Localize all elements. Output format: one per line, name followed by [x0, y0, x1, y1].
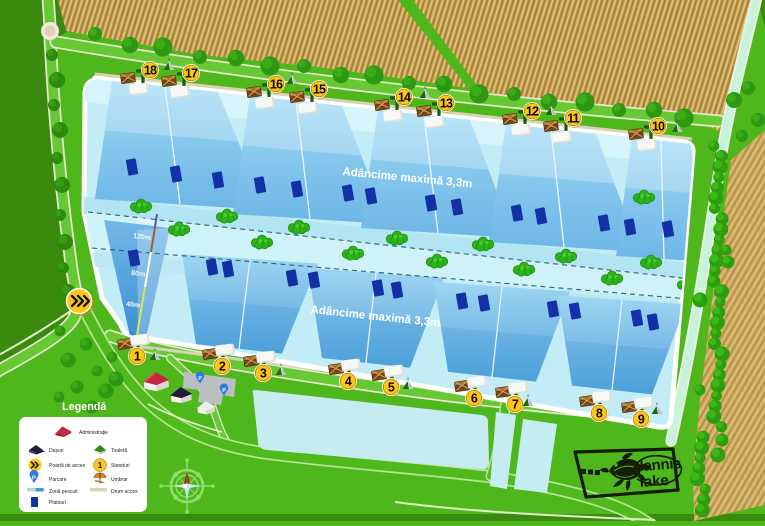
svg-text:Administrație: Administrație [79, 430, 108, 436]
svg-text:5: 5 [388, 380, 395, 394]
svg-text:1: 1 [134, 349, 141, 363]
svg-text:P: P [222, 388, 226, 394]
svg-text:16: 16 [270, 77, 283, 91]
svg-text:11: 11 [567, 111, 579, 125]
svg-text:8: 8 [596, 406, 603, 420]
svg-text:18: 18 [144, 63, 157, 77]
svg-text:13: 13 [440, 96, 453, 110]
svg-text:6: 6 [471, 391, 478, 405]
svg-text:Dușuri: Dușuri [49, 448, 63, 454]
svg-text:P: P [198, 376, 202, 382]
svg-text:15: 15 [313, 82, 326, 96]
svg-text:Parcare: Parcare [49, 477, 67, 483]
svg-text:Platouri: Platouri [49, 500, 66, 506]
svg-text:14: 14 [398, 90, 411, 104]
svg-text:Drum acces: Drum acces [111, 489, 138, 495]
svg-text:12: 12 [526, 104, 539, 118]
svg-text:Umbrar: Umbrar [111, 477, 128, 483]
svg-text:4: 4 [345, 374, 352, 388]
svg-text:3: 3 [260, 366, 267, 380]
svg-text:Toaletă: Toaletă [111, 448, 127, 454]
svg-text:7: 7 [512, 397, 519, 411]
svg-text:Legendă: Legendă [62, 401, 107, 413]
svg-text:2: 2 [219, 359, 226, 373]
svg-text:P: P [32, 475, 36, 481]
svg-text:17: 17 [185, 66, 198, 80]
svg-text:40m: 40m [126, 301, 141, 309]
svg-text:10: 10 [652, 119, 665, 133]
svg-text:1: 1 [98, 461, 103, 470]
svg-text:80m: 80m [131, 270, 146, 278]
svg-text:Zonă pescuit: Zonă pescuit [49, 489, 78, 495]
svg-text:9: 9 [638, 412, 645, 426]
svg-text:Standuri: Standuri [111, 463, 130, 469]
svg-text:Poartă de acces: Poartă de acces [49, 463, 86, 469]
